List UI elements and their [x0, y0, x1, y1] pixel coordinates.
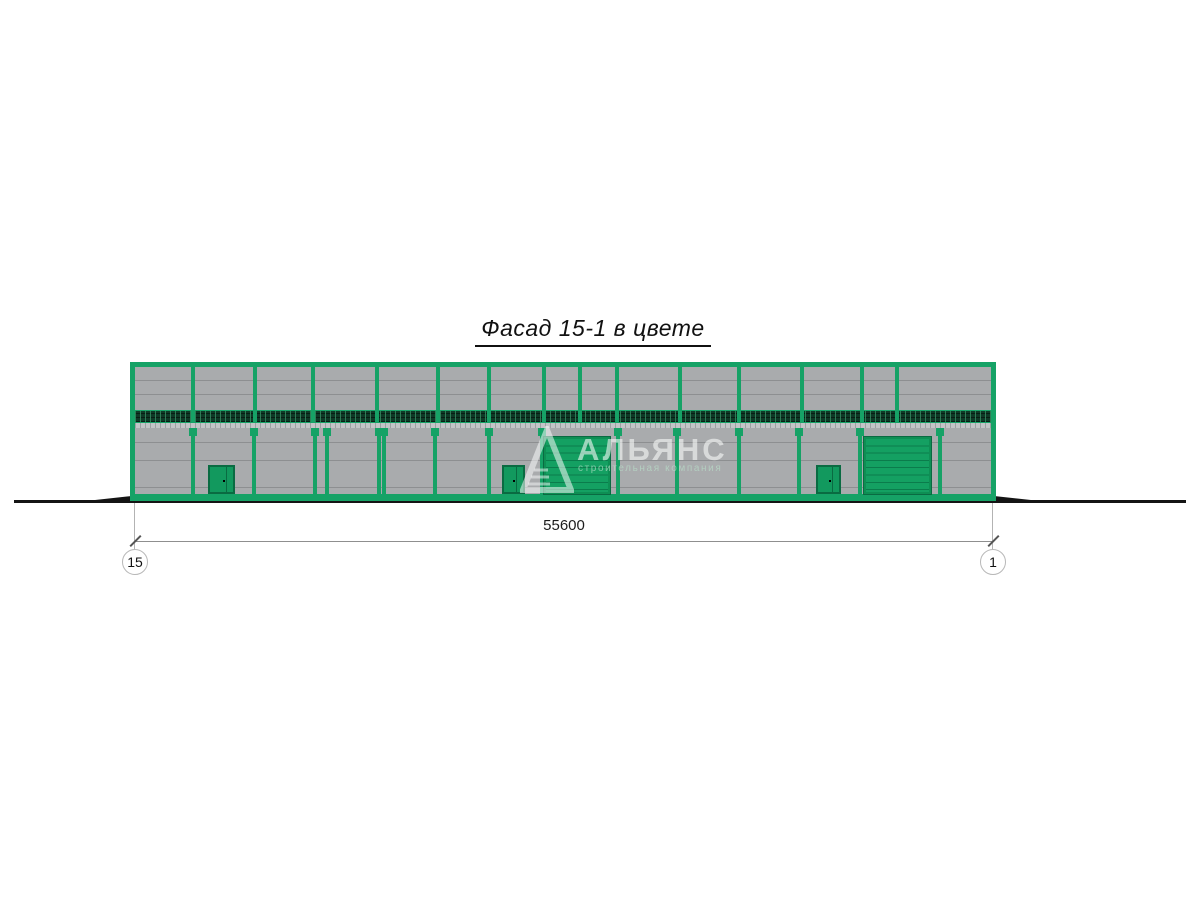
upper-mullion [487, 364, 491, 423]
column-mullion [313, 428, 317, 494]
grid-bubble-1: 1 [980, 549, 1006, 575]
column-mullion [797, 428, 801, 494]
louver-band [130, 410, 996, 423]
column-mullion [382, 428, 386, 494]
grid-label-1: 1 [989, 554, 997, 570]
upper-mullion [253, 364, 257, 423]
dimension-line [135, 541, 993, 542]
column-mullion [325, 428, 329, 494]
personnel-door [502, 465, 525, 494]
left-corner-trim [130, 362, 135, 501]
column-mullion [616, 428, 620, 494]
column-mullion [675, 428, 679, 494]
upper-mullion [542, 364, 546, 423]
column-mullion [487, 428, 491, 494]
right-corner-trim [991, 362, 996, 501]
upper-mullion [578, 364, 582, 423]
plinth-strip [130, 494, 996, 501]
upper-mullion [860, 364, 864, 423]
upper-mullion [800, 364, 804, 423]
upper-mullion [191, 364, 195, 423]
column-mullion [858, 428, 862, 494]
drawing-title: Фасад 15-1 в цвете [475, 315, 710, 347]
upper-mullion [436, 364, 440, 423]
column-mullion [433, 428, 437, 494]
title-wrap: Фасад 15-1 в цвете [393, 315, 793, 347]
upper-mullion [375, 364, 379, 423]
column-mullion [252, 428, 256, 494]
clerestory-band [130, 366, 996, 411]
upper-mullion [895, 364, 899, 423]
upper-mullion [615, 364, 619, 423]
column-mullion [938, 428, 942, 494]
drawing-canvas: Фасад 15-1 в цвете АЛЬЯНС строительная к… [0, 0, 1200, 900]
personnel-door [816, 465, 841, 494]
sectional-gate [544, 437, 610, 494]
column-mullion [377, 428, 381, 494]
personnel-door [208, 465, 235, 494]
dimension-value: 55600 [135, 517, 993, 534]
parapet-cap [130, 362, 996, 367]
column-mullion [737, 428, 741, 494]
sectional-gate [864, 437, 931, 494]
upper-mullion [678, 364, 682, 423]
grid-label-15: 15 [127, 554, 143, 570]
grid-bubble-15: 15 [122, 549, 148, 575]
building-elevation [130, 362, 996, 501]
flashing-strip [130, 423, 996, 428]
column-mullion [191, 428, 195, 494]
upper-mullion [737, 364, 741, 423]
upper-mullion [311, 364, 315, 423]
